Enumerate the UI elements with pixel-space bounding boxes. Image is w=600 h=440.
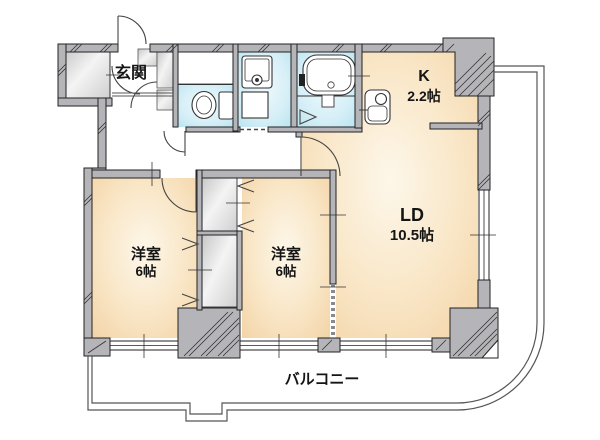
toilet-tank-icon (219, 92, 233, 119)
wall (197, 231, 242, 235)
wall (291, 44, 297, 127)
bath-counter-icon (322, 95, 334, 107)
wall (98, 98, 106, 172)
bedroom-left-size-label: 6帖 (135, 263, 157, 279)
wall (478, 280, 490, 310)
wall (268, 127, 362, 132)
wall (173, 44, 178, 127)
bath-faucet-icon (299, 74, 305, 86)
kitchen-size-label: 2.2帖 (407, 88, 440, 104)
entrance-closet-upper (157, 52, 173, 88)
bedroom-left-label: 洋室 (131, 245, 161, 263)
vanity-icon (242, 92, 268, 118)
entrance-door-arc (118, 16, 146, 44)
toilet-door-arc (164, 131, 185, 152)
floor-plan-drawing: 玄関 K 2.2帖 LD 10.5帖 洋室 6帖 洋室 6帖 バルコニー (0, 0, 600, 440)
bedroom-center-label: 洋室 (271, 245, 301, 263)
storage-floor (178, 52, 233, 84)
closet-lower (202, 235, 237, 307)
wall-pillar-center (178, 308, 240, 358)
wall (318, 338, 340, 352)
wall (196, 170, 336, 178)
entrance-label: 玄関 (115, 63, 147, 82)
entrance-storage-box (66, 48, 110, 98)
wall (84, 168, 92, 356)
wall (197, 170, 202, 310)
living-dining-size-label: 10.5帖 (390, 226, 434, 244)
wall (237, 231, 242, 310)
wall (233, 44, 238, 131)
bedroom-center-size-label: 6帖 (275, 263, 297, 279)
wall (58, 44, 118, 52)
wall-kitchen-counter (430, 123, 482, 129)
wall (355, 44, 362, 128)
closet-upper (202, 178, 237, 231)
wall (330, 170, 336, 284)
kitchen-label: K (418, 68, 430, 85)
floor-plan: 玄関 K 2.2帖 LD 10.5帖 洋室 6帖 洋室 6帖 バルコニー (0, 0, 600, 440)
living-dining-label: LD (400, 205, 424, 225)
wall (92, 170, 160, 178)
wall (186, 127, 240, 132)
closet-door-arc (131, 82, 157, 108)
balcony-label: バルコニー (285, 371, 360, 388)
